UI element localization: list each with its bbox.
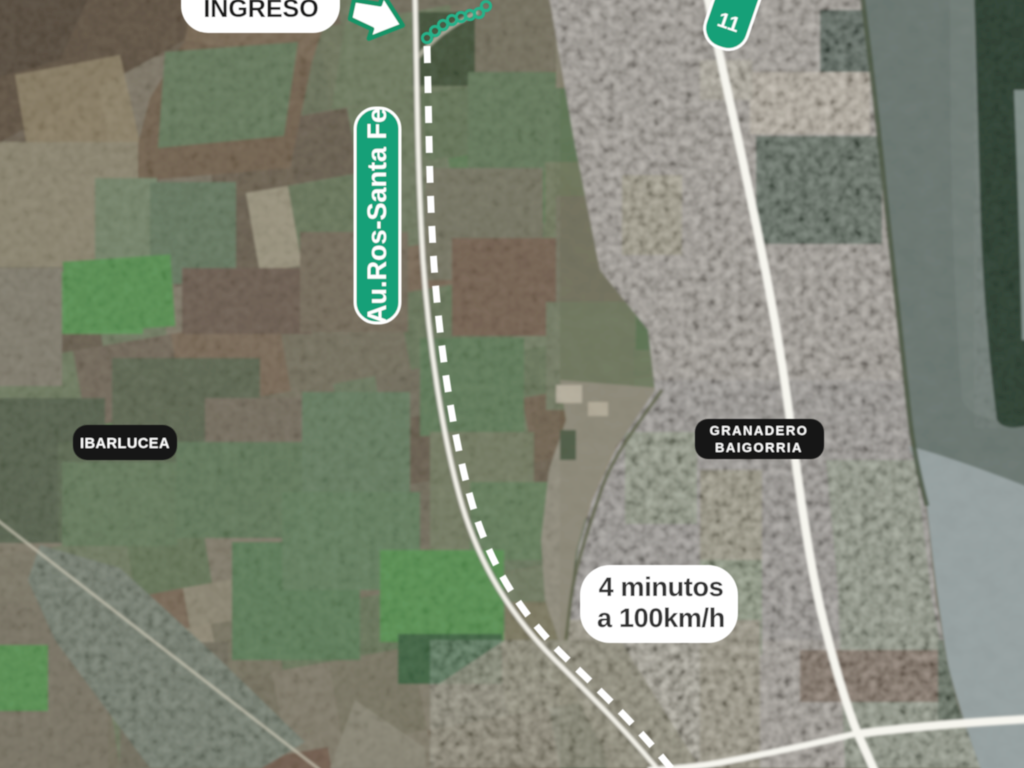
svg-text:Au.Ros-Santa Fe: Au.Ros-Santa Fe — [362, 108, 392, 324]
svg-text:INGRESO: INGRESO — [203, 0, 318, 23]
svg-text:4 minutos: 4 minutos — [599, 572, 724, 602]
svg-text:GRANADERO: GRANADERO — [710, 423, 809, 438]
svg-text:IBARLUCEA: IBARLUCEA — [80, 436, 170, 452]
svg-text:BAIGORRIA: BAIGORRIA — [715, 440, 803, 455]
svg-text:a 100km/h: a 100km/h — [597, 603, 725, 633]
